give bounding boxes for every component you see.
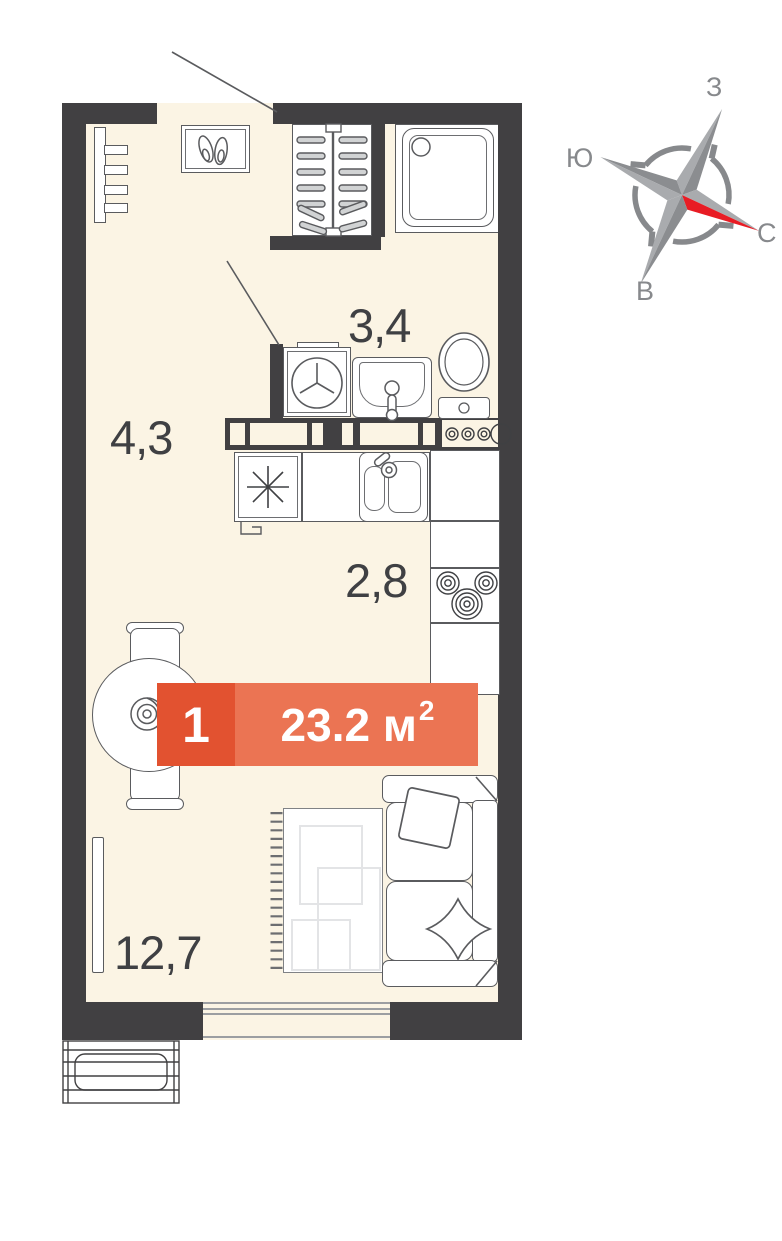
compass-east-label: В — [636, 276, 654, 307]
refrigerator-inner — [238, 456, 298, 518]
compass-west-label: З — [706, 72, 722, 103]
rug — [283, 808, 383, 973]
wall-top-right — [273, 103, 522, 124]
window-glazing-line — [203, 1002, 390, 1004]
window-glazing-line — [203, 1008, 390, 1010]
window-glazing-line — [203, 1013, 390, 1015]
coat-hook — [104, 203, 128, 213]
washing-machine-inner — [287, 351, 347, 413]
room-label-hallway: 4,3 — [110, 410, 172, 465]
floor-plan-page: 4,3 3,4 2,8 12,7 1 23.2 м2 — [0, 0, 782, 1241]
washing-machine-tray — [297, 342, 339, 348]
wardrobe-zone — [292, 124, 372, 236]
band-opening — [423, 423, 435, 445]
washbasin-bowl — [359, 362, 425, 407]
wall-bottom-right — [390, 1002, 522, 1040]
entrance-opening — [157, 103, 273, 124]
counter-divider — [431, 567, 499, 569]
band-opening — [312, 423, 323, 445]
shower-tray-inner — [409, 135, 487, 220]
area-superscript: 2 — [419, 695, 435, 727]
ac-basket-icon — [63, 1041, 179, 1103]
compass-south-label: Ю — [566, 143, 593, 174]
wall-top-left — [62, 103, 157, 124]
band-opening — [230, 423, 245, 445]
window-sill-line — [203, 1036, 390, 1038]
sofa-armrest-bottom — [382, 960, 498, 987]
compass-rose — [545, 50, 782, 325]
room-label-kitchen: 2,8 — [345, 553, 407, 608]
sofa-seat-1 — [386, 802, 473, 881]
band-opening — [250, 423, 307, 445]
kitchen-sink-bowl-small — [364, 466, 385, 511]
room-count-badge: 1 — [157, 683, 235, 766]
coat-hook — [104, 145, 128, 155]
window — [203, 1002, 390, 1040]
tv — [92, 837, 104, 973]
toilet-tank — [438, 397, 490, 419]
wall-right — [498, 103, 522, 1040]
room-label-bathroom: 3,4 — [348, 298, 410, 353]
wardrobe-wall-bottom — [270, 236, 381, 250]
kitchen-sink-bowl-large — [388, 461, 421, 513]
kitchen-counter-vertical — [430, 450, 500, 695]
compass-north-label: С — [757, 218, 777, 249]
shoe-cabinet-inner — [185, 129, 246, 169]
coat-hook — [104, 165, 128, 175]
band-opening — [342, 423, 353, 445]
wall-bottom-left — [62, 1002, 203, 1040]
coat-hook — [104, 185, 128, 195]
chair-bottom-back — [126, 798, 184, 810]
sofa-back — [472, 800, 498, 962]
wall-left — [62, 103, 86, 1040]
room-label-living: 12,7 — [114, 925, 201, 980]
counter-divider — [431, 622, 499, 624]
sofa-seat-2 — [386, 881, 473, 961]
bathroom-wall-stub — [270, 344, 283, 420]
meter-box — [442, 420, 498, 447]
wardrobe-wall-right — [372, 124, 385, 237]
total-area-badge: 23.2 м2 — [235, 683, 478, 766]
counter-divider — [431, 520, 499, 522]
area-badge: 1 23.2 м2 — [157, 683, 478, 766]
sofa-armrest-top — [382, 775, 498, 803]
band-opening-bathroom-door — [360, 423, 418, 445]
area-value: 23.2 м — [281, 698, 417, 752]
